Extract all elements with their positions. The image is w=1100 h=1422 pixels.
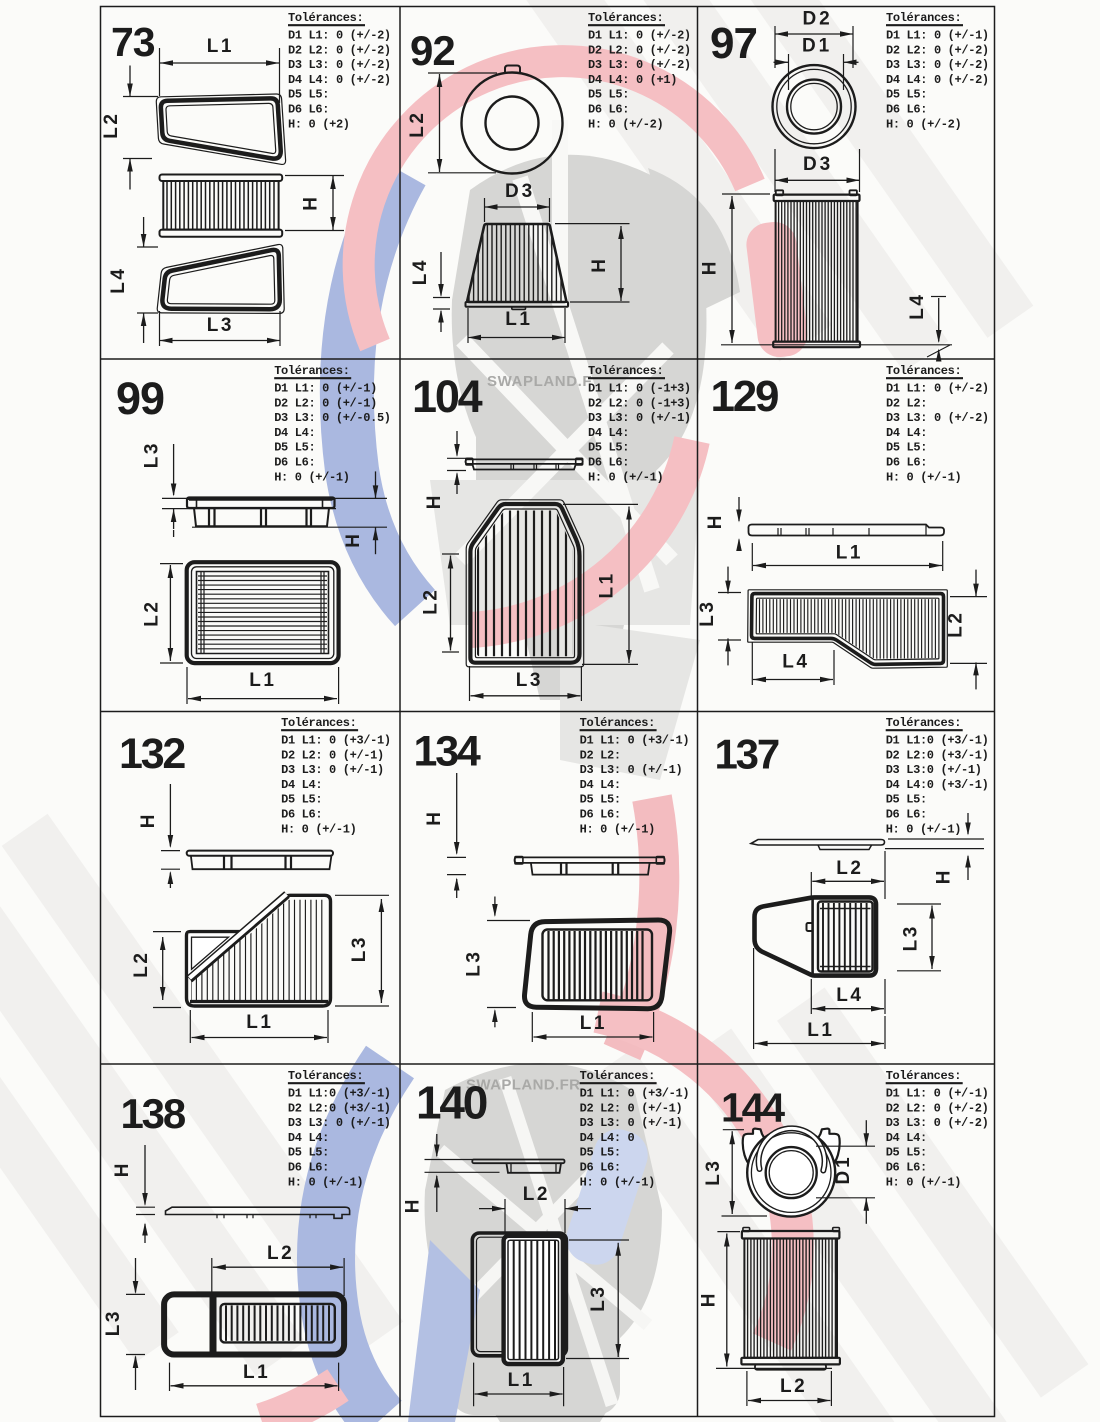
svg-text:D4 L4:: D4 L4: (588, 426, 629, 440)
svg-text:D3 L3: 0 (+/-2): D3 L3: 0 (+/-2) (588, 58, 691, 72)
svg-text:L 1: L 1 (508, 1370, 533, 1391)
svg-text:H: 0 (+/-1): H: 0 (+/-1) (886, 470, 961, 484)
svg-text:D2 L2: 0 (+/-1): D2 L2: 0 (+/-1) (281, 748, 384, 762)
svg-text:D2 L2:: D2 L2: (580, 748, 621, 762)
svg-text:D5 L5:: D5 L5: (886, 793, 927, 807)
svg-text:H: H (112, 1164, 133, 1177)
svg-text:D4 L4: 0: D4 L4: 0 (580, 1131, 635, 1145)
svg-text:Tolérances:: Tolérances: (288, 1069, 363, 1083)
svg-text:L 2: L 2 (421, 591, 442, 615)
svg-text:D6 L6:: D6 L6: (886, 456, 927, 470)
svg-text:H: 0 (+/-1): H: 0 (+/-1) (281, 822, 356, 836)
svg-text:D4 L4:: D4 L4: (274, 426, 315, 440)
svg-text:D3 L3: 0 (+/-1): D3 L3: 0 (+/-1) (281, 763, 384, 777)
svg-text:D5 L5:: D5 L5: (288, 1146, 329, 1160)
svg-text:97: 97 (710, 19, 757, 68)
svg-text:D5 L5:: D5 L5: (588, 441, 629, 455)
svg-text:L 1: L 1 (249, 670, 274, 691)
svg-text:D1 L1: 0 (-1+3): D1 L1: 0 (-1+3) (588, 382, 691, 396)
svg-text:D3 L3: 0 (+/-1): D3 L3: 0 (+/-1) (580, 1116, 683, 1130)
svg-text:L 1: L 1 (207, 36, 232, 57)
svg-text:92: 92 (410, 27, 455, 74)
svg-text:D5 L5:: D5 L5: (288, 88, 329, 102)
svg-text:D4 L4: 0 (+/-2): D4 L4: 0 (+/-2) (288, 73, 391, 87)
svg-text:Tolérances:: Tolérances: (588, 11, 663, 25)
svg-text:104: 104 (412, 371, 483, 422)
svg-text:D6 L6:: D6 L6: (288, 1161, 329, 1175)
svg-text:L 2: L 2 (131, 954, 152, 978)
svg-text:D3 L3: 0 (+/-0.5): D3 L3: 0 (+/-0.5) (274, 411, 390, 425)
svg-text:Tolérances:: Tolérances: (288, 11, 363, 25)
svg-text:D5 L5:: D5 L5: (886, 88, 927, 102)
svg-text:L 4: L 4 (836, 985, 861, 1006)
svg-text:D6 L6:: D6 L6: (281, 808, 322, 822)
svg-text:73: 73 (111, 19, 155, 65)
svg-text:D6 L6:: D6 L6: (580, 1161, 621, 1175)
svg-text:D 1: D 1 (833, 1157, 854, 1185)
svg-text:D1 L1: 0 (+/-1): D1 L1: 0 (+/-1) (274, 382, 377, 396)
svg-text:144: 144 (721, 1085, 785, 1131)
svg-text:H: 0 (+/-1): H: 0 (+/-1) (886, 1175, 961, 1189)
svg-text:137: 137 (715, 731, 779, 778)
svg-text:Tolérances:: Tolérances: (886, 11, 961, 25)
svg-text:D3 L3: 0 (+/-1): D3 L3: 0 (+/-1) (288, 1116, 391, 1130)
svg-text:D5 L5:: D5 L5: (580, 1146, 621, 1160)
svg-text:D5 L5:: D5 L5: (588, 88, 629, 102)
svg-text:D3 L3: 0 (+/-2): D3 L3: 0 (+/-2) (886, 1116, 989, 1130)
svg-text:L 3: L 3 (703, 1162, 724, 1186)
svg-text:Tolérances:: Tolérances: (580, 1069, 655, 1083)
svg-text:H: 0 (+/-2): H: 0 (+/-2) (886, 117, 961, 131)
svg-text:D1 L1: 0 (+3/-1): D1 L1: 0 (+3/-1) (281, 734, 391, 748)
svg-text:Tolérances:: Tolérances: (886, 716, 961, 730)
svg-text:Tolérances:: Tolérances: (588, 364, 663, 378)
svg-text:138: 138 (121, 1090, 186, 1137)
svg-text:D3 L3: 0 (+/-2): D3 L3: 0 (+/-2) (886, 58, 989, 72)
svg-text:L 1: L 1 (597, 573, 618, 598)
svg-text:L 3: L 3 (349, 938, 370, 962)
svg-text:D2 L2:: D2 L2: (886, 396, 927, 410)
svg-text:D2 L2: 0 (+/-2): D2 L2: 0 (+/-2) (886, 43, 989, 57)
svg-text:D5 L5:: D5 L5: (886, 1146, 927, 1160)
svg-text:L 4: L 4 (410, 260, 431, 285)
svg-text:H: H (301, 198, 322, 211)
svg-text:D2 L2: 0 (+/-2): D2 L2: 0 (+/-2) (588, 43, 691, 57)
svg-text:H: 0 (+/-2): H: 0 (+/-2) (588, 117, 663, 131)
svg-text:L 4: L 4 (782, 651, 807, 672)
svg-text:D5 L5:: D5 L5: (281, 793, 322, 807)
svg-text:L 3: L 3 (103, 1312, 124, 1336)
svg-text:L 1: L 1 (505, 309, 530, 330)
svg-text:D4 L4:0 (+3/-1): D4 L4:0 (+3/-1) (886, 778, 989, 792)
svg-text:L 3: L 3 (588, 1288, 609, 1312)
svg-text:L 3: L 3 (207, 315, 231, 336)
svg-text:L 1: L 1 (246, 1012, 271, 1033)
svg-text:H: H (934, 871, 955, 884)
svg-text:Tolérances:: Tolérances: (580, 716, 655, 730)
svg-text:D3 L3: 0 (+/-2): D3 L3: 0 (+/-2) (886, 411, 989, 425)
svg-text:D2 L2: 0 (+/-1): D2 L2: 0 (+/-1) (274, 396, 377, 410)
svg-text:Tolérances:: Tolérances: (274, 364, 349, 378)
svg-text:140: 140 (416, 1077, 487, 1129)
svg-text:D1 L1:0 (+3/-1): D1 L1:0 (+3/-1) (886, 734, 989, 748)
svg-text:D1 L1: 0 (+/-2): D1 L1: 0 (+/-2) (588, 29, 691, 43)
svg-text:D6 L6:: D6 L6: (274, 456, 315, 470)
svg-text:D1 L1: 0 (+3/-1): D1 L1: 0 (+3/-1) (580, 1087, 690, 1101)
svg-text:D2 L2: 0 (+/-1): D2 L2: 0 (+/-1) (580, 1101, 683, 1115)
svg-text:D2 L2:0 (+3/-1): D2 L2:0 (+3/-1) (886, 748, 989, 762)
svg-text:L 2: L 2 (142, 603, 163, 627)
svg-text:L 2: L 2 (836, 858, 860, 879)
svg-text:H: 0 (+/-1): H: 0 (+/-1) (288, 1175, 363, 1189)
svg-text:H: H (589, 260, 610, 273)
svg-text:129: 129 (711, 372, 779, 421)
svg-text:D 3: D 3 (803, 154, 830, 175)
svg-text:H: 0 (+/-1): H: 0 (+/-1) (588, 470, 663, 484)
svg-text:D1 L1: 0 (+/-2): D1 L1: 0 (+/-2) (288, 29, 391, 43)
svg-text:D2 L2: 0 (-1+3): D2 L2: 0 (-1+3) (588, 396, 691, 410)
svg-text:L 2: L 2 (101, 115, 122, 139)
svg-text:134: 134 (414, 728, 481, 776)
svg-text:D4 L4: 0 (+1): D4 L4: 0 (+1) (588, 73, 677, 87)
svg-text:D4 L4:: D4 L4: (886, 426, 927, 440)
svg-text:L 2: L 2 (523, 1184, 547, 1205)
svg-text:L 3: L 3 (697, 603, 718, 627)
svg-text:H: H (424, 813, 445, 826)
svg-text:L 1: L 1 (580, 1013, 605, 1034)
svg-text:L 2: L 2 (946, 614, 967, 638)
svg-text:D6 L6:: D6 L6: (588, 103, 629, 117)
svg-text:L 1: L 1 (243, 1362, 268, 1383)
svg-text:H: H (402, 1200, 423, 1213)
svg-text:L 3: L 3 (464, 953, 485, 977)
svg-text:L 4: L 4 (907, 295, 928, 320)
svg-text:D4 L4: 0 (+/-2): D4 L4: 0 (+/-2) (886, 73, 989, 87)
svg-text:H: 0 (+/-1): H: 0 (+/-1) (580, 1175, 655, 1189)
svg-text:D 1: D 1 (802, 36, 830, 57)
svg-text:L 2: L 2 (267, 1243, 291, 1264)
svg-text:L 1: L 1 (807, 1020, 832, 1041)
svg-text:L 4: L 4 (108, 269, 129, 294)
svg-text:D1 L1:0 (+3/-1): D1 L1:0 (+3/-1) (288, 1087, 391, 1101)
svg-text:D4 L4:: D4 L4: (288, 1131, 329, 1145)
svg-text:H: 0 (+/-1): H: 0 (+/-1) (274, 470, 349, 484)
svg-text:L 1: L 1 (836, 543, 861, 564)
svg-text:SWAPLAND.F: SWAPLAND.F (487, 373, 592, 390)
svg-text:D6 L6:: D6 L6: (588, 456, 629, 470)
svg-text:D6 L6:: D6 L6: (288, 103, 329, 117)
svg-text:D6 L6:: D6 L6: (886, 808, 927, 822)
svg-text:99: 99 (116, 373, 164, 424)
svg-text:D4 L4:: D4 L4: (580, 778, 621, 792)
svg-text:D2 L2: 0 (+/-2): D2 L2: 0 (+/-2) (886, 1101, 989, 1115)
svg-text:H: 0 (+2): H: 0 (+2) (288, 117, 350, 131)
svg-text:H: H (700, 262, 721, 275)
svg-text:D3 L3: 0 (+/-1): D3 L3: 0 (+/-1) (580, 763, 683, 777)
svg-text:D5 L5:: D5 L5: (274, 441, 315, 455)
svg-text:D3 L3:0 (+/-1): D3 L3:0 (+/-1) (886, 763, 982, 777)
svg-text:D1 L1: 0 (+/-1): D1 L1: 0 (+/-1) (886, 1087, 989, 1101)
svg-text:D 3: D 3 (505, 181, 532, 202)
svg-text:D6 L6:: D6 L6: (886, 103, 927, 117)
svg-text:D4 L4:: D4 L4: (281, 778, 322, 792)
svg-text:L 3: L 3 (516, 670, 540, 691)
svg-text:Tolérances:: Tolérances: (886, 364, 961, 378)
svg-text:L 2: L 2 (780, 1376, 804, 1397)
svg-text:H: H (424, 496, 445, 509)
svg-text:H: H (705, 516, 726, 529)
svg-text:D6 L6:: D6 L6: (886, 1161, 927, 1175)
svg-text:D1 L1: 0 (+3/-1): D1 L1: 0 (+3/-1) (580, 734, 690, 748)
svg-text:D1 L1: 0 (+/-2): D1 L1: 0 (+/-2) (886, 382, 989, 396)
svg-text:H: H (138, 815, 159, 828)
svg-text:Tolérances:: Tolérances: (281, 716, 356, 730)
svg-text:132: 132 (119, 730, 185, 778)
svg-text:H: H (699, 1294, 720, 1307)
svg-text:D4 L4:: D4 L4: (886, 1131, 927, 1145)
svg-text:D1 L1: 0 (+/-1): D1 L1: 0 (+/-1) (886, 29, 989, 43)
svg-text:D6 L6:: D6 L6: (580, 808, 621, 822)
svg-text:L 3: L 3 (142, 444, 163, 468)
svg-text:H: H (343, 535, 364, 548)
svg-text:D3 L3: 0 (+/-1): D3 L3: 0 (+/-1) (588, 411, 691, 425)
svg-text:D5 L5:: D5 L5: (886, 441, 927, 455)
svg-text:L 2: L 2 (407, 114, 428, 138)
svg-text:H: 0 (+/-1): H: 0 (+/-1) (580, 822, 655, 836)
svg-text:D5 L5:: D5 L5: (580, 793, 621, 807)
svg-text:L 3: L 3 (901, 927, 922, 951)
svg-text:D2 L2:0 (+3/-1): D2 L2:0 (+3/-1) (288, 1101, 391, 1115)
svg-text:D2 L2: 0 (+/-2): D2 L2: 0 (+/-2) (288, 43, 391, 57)
svg-text:H: 0 (+/-1): H: 0 (+/-1) (886, 822, 961, 836)
svg-text:D3 L3: 0 (+/-2): D3 L3: 0 (+/-2) (288, 58, 391, 72)
svg-text:Tolérances:: Tolérances: (886, 1069, 961, 1083)
svg-text:D 2: D 2 (803, 9, 830, 30)
